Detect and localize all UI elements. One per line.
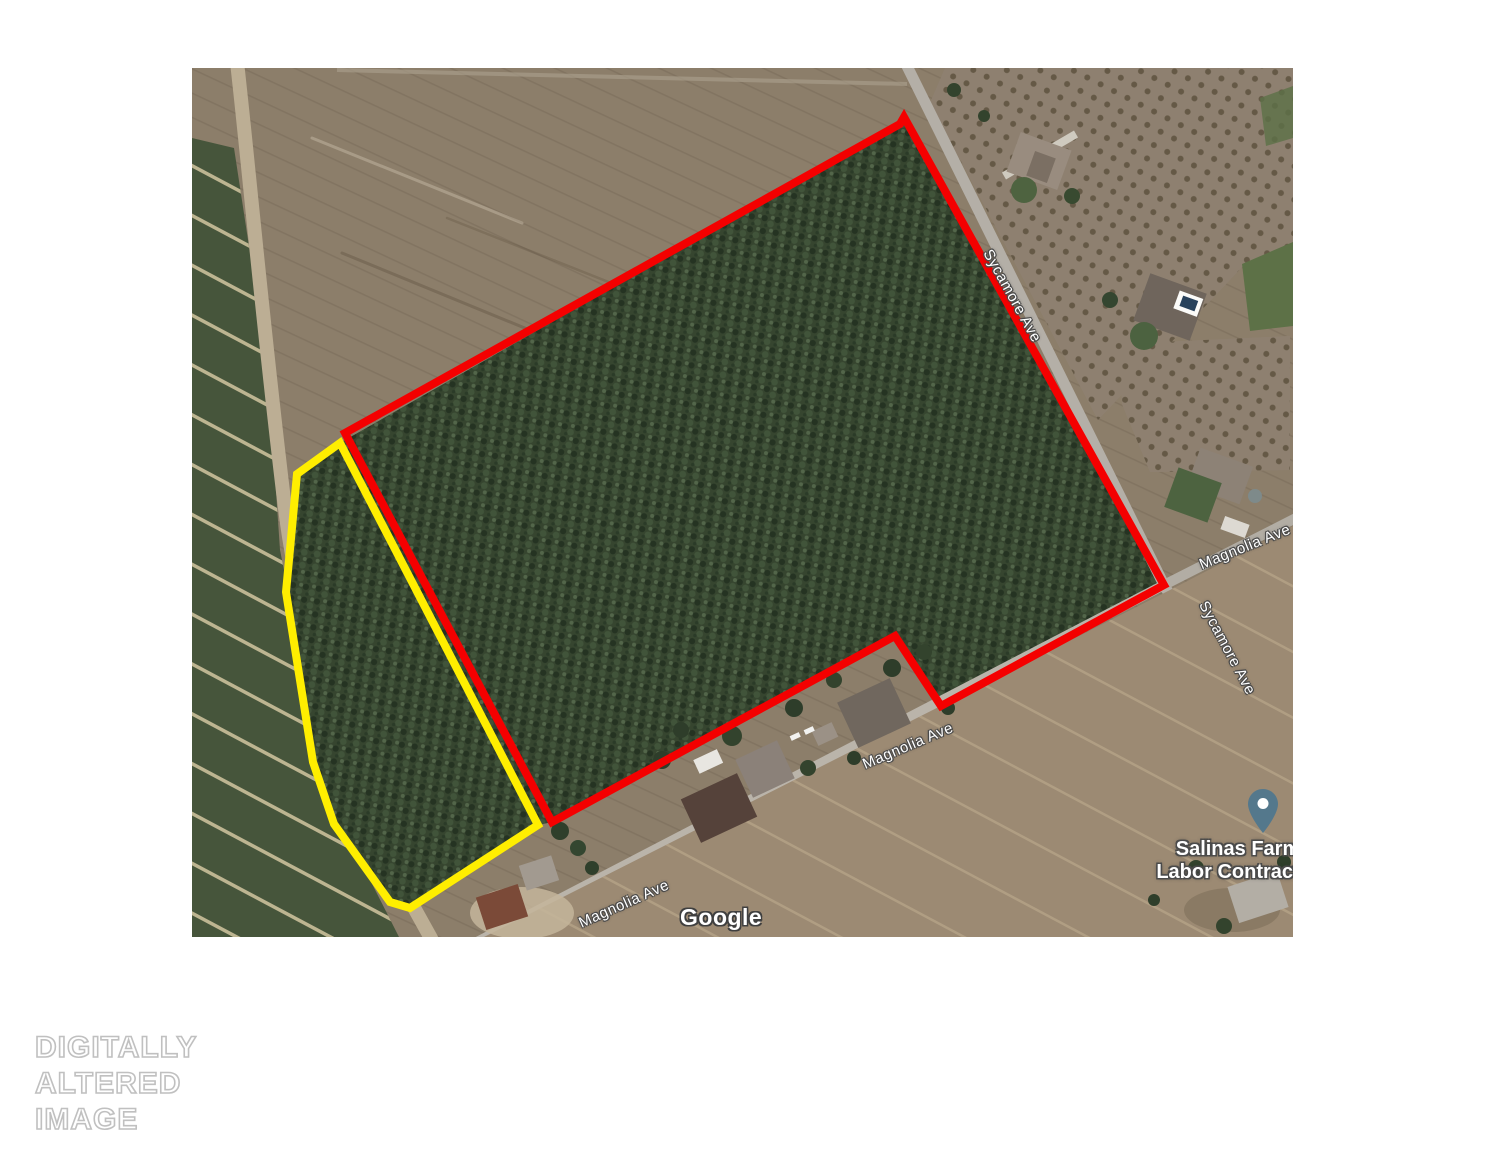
notice-line1: DIGITALLY: [35, 1030, 197, 1066]
place-pin-icon[interactable]: [1248, 789, 1278, 833]
notice-line3: IMAGE: [35, 1102, 197, 1138]
place-label-line2: Labor Contractor: [1156, 861, 1293, 884]
digitally-altered-notice: DIGITALLY ALTERED IMAGE: [35, 1030, 197, 1138]
google-watermark: Google: [680, 904, 762, 931]
place-label[interactable]: Salinas Farm Labor Contractor: [1156, 838, 1293, 884]
satellite-imagery: [192, 68, 1293, 937]
notice-line2: ALTERED: [35, 1066, 197, 1102]
place-label-line1: Salinas Farm: [1156, 838, 1293, 861]
satellite-map: Sycamore Ave Magnolia Ave Sycamore Ave M…: [192, 68, 1293, 937]
